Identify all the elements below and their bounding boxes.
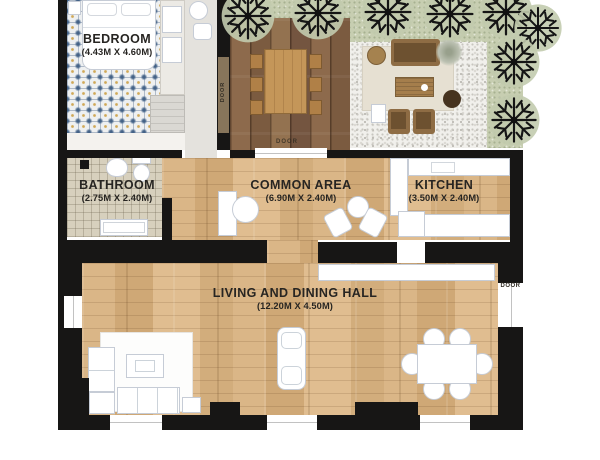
window-left <box>64 296 82 328</box>
bath-light-icon <box>80 160 89 169</box>
window-bottom <box>110 415 162 429</box>
common-area-dims: (6.90M X 2.40M) <box>250 193 351 204</box>
tree-icon <box>219 0 277 45</box>
wall-bottom <box>317 415 420 430</box>
wall-hall-right-lower <box>498 327 523 430</box>
outdoor-chair <box>388 109 410 134</box>
kitchen-pass-opening <box>397 242 425 263</box>
nightstand <box>68 1 81 15</box>
sink <box>106 158 128 177</box>
window-bottom <box>267 415 317 429</box>
wall-left <box>58 0 67 240</box>
bathroom-dims: (2.75M X 2.40M) <box>79 193 155 204</box>
wardrobe-box <box>162 6 182 33</box>
outdoor-side-table <box>367 46 386 65</box>
wall-deck-sill <box>230 150 257 158</box>
bedroom-label: BEDROOM (4.43M X 4.60M) <box>82 32 153 58</box>
common-area-name: COMMON AREA <box>250 178 351 192</box>
door-label-deck-bottom: DOOR <box>267 139 307 145</box>
outdoor-sofa-seat <box>394 43 436 62</box>
wall-pilaster <box>210 402 240 416</box>
door-label-deck-left: DOOR <box>220 62 226 122</box>
deck-chair <box>309 77 322 92</box>
outdoor-chair-seat <box>391 112 406 129</box>
outdoor-chair <box>413 109 435 134</box>
pillow <box>87 3 117 16</box>
outdoor-round-table-dark <box>443 90 461 108</box>
pillow <box>121 3 151 16</box>
wall-mid-right <box>425 242 523 263</box>
toilet-tank <box>132 157 151 164</box>
deck-chair <box>250 54 263 69</box>
wall-hall-right-upper <box>498 263 523 283</box>
sofa-section-vertical <box>88 347 115 392</box>
bathtub <box>100 219 148 236</box>
stairs <box>150 95 185 133</box>
wall-kitchen-top <box>325 150 523 158</box>
living-dining-dims: (12.20M X 4.50M) <box>213 301 378 312</box>
wall-bottom <box>162 415 267 430</box>
bathtub-inner <box>103 222 145 233</box>
kitchen-counter-top <box>408 158 510 176</box>
window-bottom <box>420 415 470 429</box>
deck-chair <box>250 100 263 115</box>
tree-icon <box>486 92 542 148</box>
hallway-chair <box>193 23 212 40</box>
side-table <box>182 397 201 413</box>
console-seat <box>281 366 302 385</box>
kitchen-counter-left <box>390 158 408 216</box>
coffee-table-inner <box>135 360 155 372</box>
wall-kitchen-right <box>510 150 523 250</box>
floor-plan: DOOR DOOR DOOR BEDROOM (4.43M X 4.60M) B… <box>0 0 600 460</box>
outdoor-sofa <box>391 39 440 66</box>
kitchen-dims: (3.50M X 2.40M) <box>409 193 480 204</box>
coffee-table <box>126 354 164 378</box>
console-seat <box>281 332 302 349</box>
sideboard <box>318 264 495 281</box>
kitchen-label: KITCHEN (3.50M X 2.40M) <box>409 178 480 204</box>
bedroom-dims: (4.43M X 4.60M) <box>82 47 153 58</box>
tv-console <box>277 327 306 390</box>
sofa-cushion-line <box>89 370 114 371</box>
outdoor-chair-seat <box>416 112 431 129</box>
bathroom-name: BATHROOM <box>79 178 155 192</box>
wall-corner-chunk <box>58 378 89 420</box>
hallway-plant <box>189 1 208 20</box>
dining-table <box>417 344 477 384</box>
wall-bathroom-stub <box>162 198 172 240</box>
opening-floor-patch <box>267 240 318 263</box>
tree-icon <box>421 0 479 43</box>
wall-mid-left <box>58 240 267 263</box>
living-dining-name: LIVING AND DINING HALL <box>213 286 378 300</box>
kitchen-sink <box>431 162 455 173</box>
outdoor-mini-table <box>371 104 386 123</box>
sofa-section-horizontal <box>117 387 180 414</box>
living-dining-label: LIVING AND DINING HALL (12.20M X 4.50M) <box>213 286 378 312</box>
wall-pilaster <box>355 402 418 416</box>
blanket-fold <box>83 27 155 28</box>
tree-icon <box>359 0 417 41</box>
decor-dot <box>421 84 428 91</box>
deck-dining-table <box>264 49 307 114</box>
deck-chair <box>309 54 322 69</box>
common-area-label: COMMON AREA (6.90M X 2.40M) <box>250 178 351 204</box>
kitchen-appliance <box>398 211 425 237</box>
deck-chair <box>250 77 263 92</box>
tree-icon <box>289 0 347 42</box>
kitchen-name: KITCHEN <box>409 178 480 192</box>
deck-chair <box>309 100 322 115</box>
sofa-corner <box>89 392 115 414</box>
outdoor-coffee-table <box>395 77 434 97</box>
wall-bathroom-top <box>58 150 182 158</box>
wardrobe-box <box>162 37 182 63</box>
door-right-channel <box>498 283 523 327</box>
tree-icon <box>486 34 542 90</box>
wall-mid-center <box>318 242 397 263</box>
wall-bottom <box>82 415 110 430</box>
bathroom-label: BATHROOM (2.75M X 2.40M) <box>79 178 155 204</box>
door-label-living-right: DOOR <box>497 283 524 289</box>
wall-bottom <box>470 415 498 430</box>
sliding-door-deck <box>255 148 327 158</box>
bedroom-name: BEDROOM <box>82 32 153 46</box>
